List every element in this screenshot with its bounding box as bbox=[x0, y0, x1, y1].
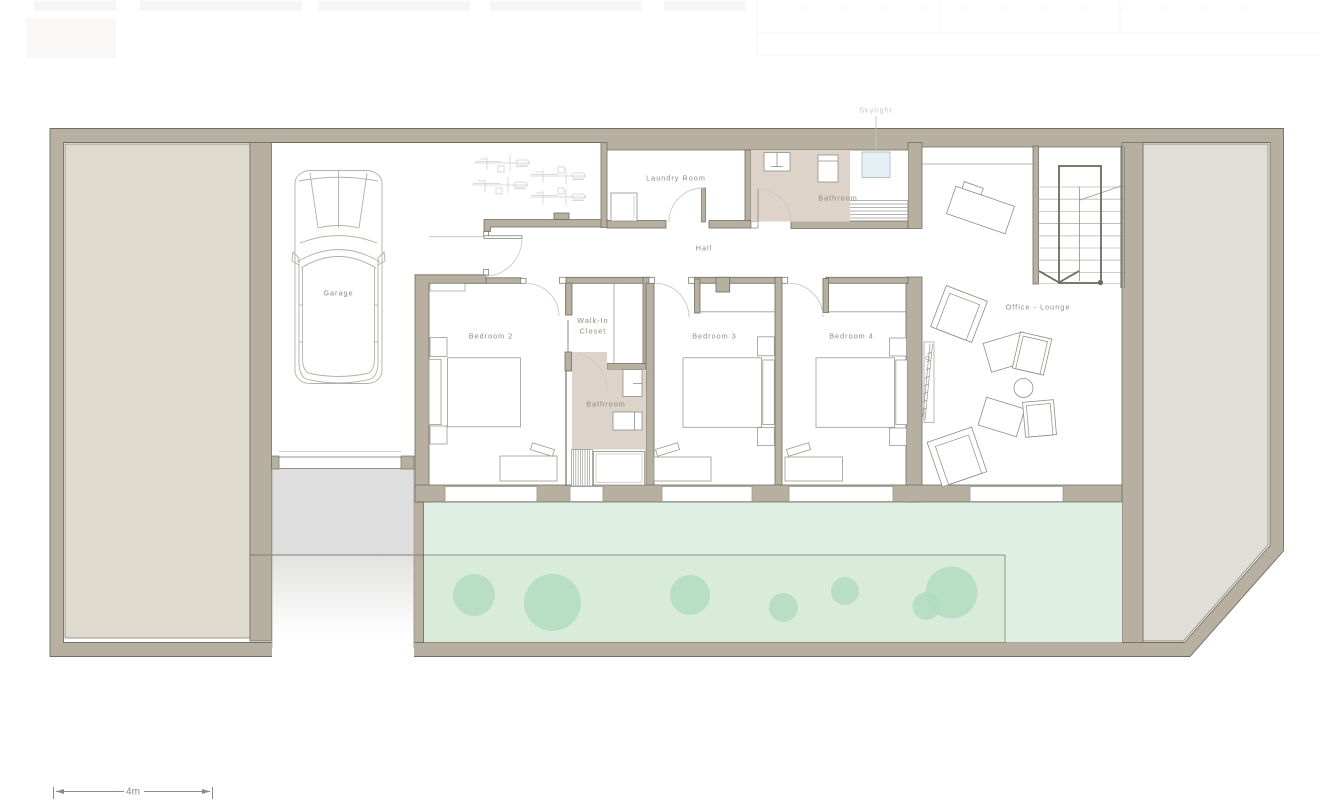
svg-text:4m: 4m bbox=[126, 787, 140, 798]
svg-text:Laundry Room: Laundry Room bbox=[646, 174, 706, 183]
svg-text:Bathroom: Bathroom bbox=[586, 400, 626, 409]
svg-text:Bedroom 3: Bedroom 3 bbox=[692, 332, 737, 341]
svg-text:Skylight: Skylight bbox=[859, 106, 893, 115]
svg-text:Office - Lounge: Office - Lounge bbox=[1006, 303, 1071, 312]
svg-text:Closet: Closet bbox=[580, 327, 607, 336]
svg-text:Bedroom 4: Bedroom 4 bbox=[829, 332, 874, 341]
svg-text:Hall: Hall bbox=[696, 244, 713, 253]
svg-text:Walk-In: Walk-In bbox=[577, 316, 608, 325]
svg-text:Garage: Garage bbox=[323, 289, 353, 298]
svg-text:Bedroom 2: Bedroom 2 bbox=[469, 332, 514, 341]
svg-text:Bathroom: Bathroom bbox=[818, 194, 858, 203]
